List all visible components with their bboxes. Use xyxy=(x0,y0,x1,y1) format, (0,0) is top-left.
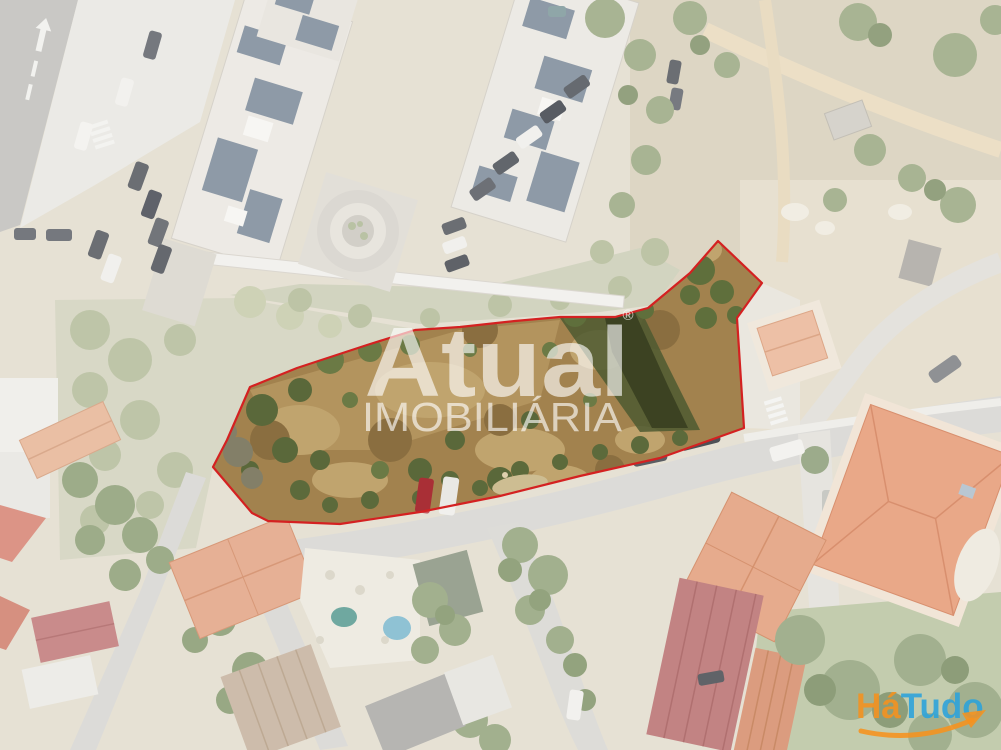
watermark-subtitle: IMOBILIÁRIA xyxy=(362,394,623,440)
aerial-photo: Atual ® IMOBILIÁRIA HáTudo xyxy=(0,0,1001,750)
watermark-registered-icon: ® xyxy=(622,307,633,324)
agency-logo-part1: Há xyxy=(856,687,901,726)
agency-logo-text: HáTudo xyxy=(856,687,984,726)
watermark: Atual ® IMOBILIÁRIA xyxy=(362,307,634,440)
